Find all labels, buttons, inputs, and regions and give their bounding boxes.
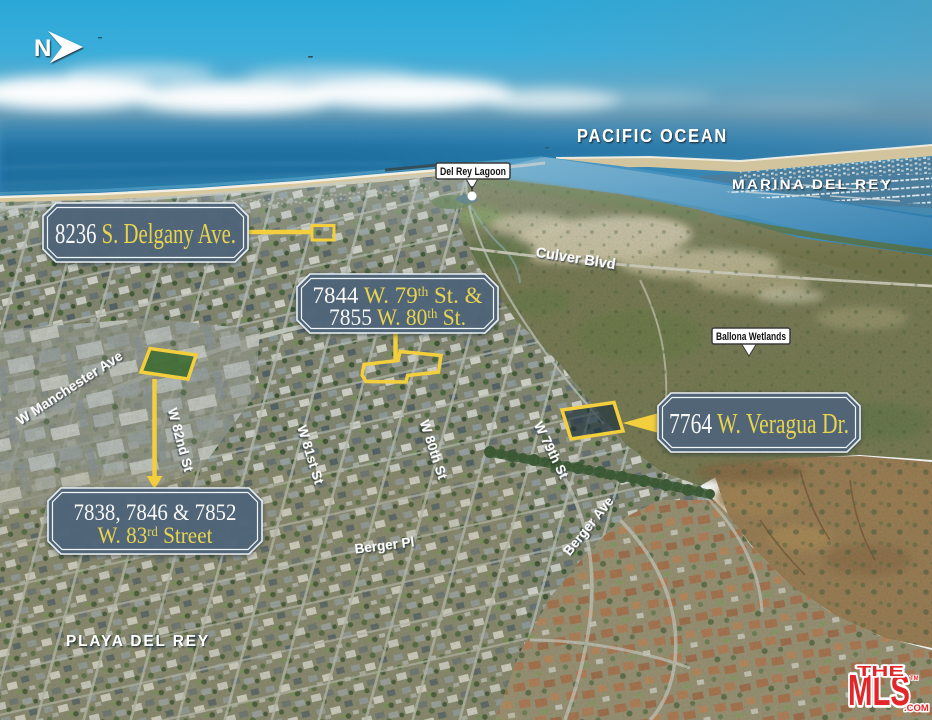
svg-text:Ballona Wetlands: Ballona Wetlands (716, 331, 786, 343)
svg-text:.COM: .COM (904, 703, 929, 714)
svg-text:N: N (34, 35, 51, 62)
svg-text:PACIFIC OCEAN: PACIFIC OCEAN (577, 126, 728, 146)
svg-text:8236 S. Delgany Ave.: 8236 S. Delgany Ave. (55, 219, 236, 250)
svg-text:7764 W. Veragua Dr.: 7764 W. Veragua Dr. (669, 409, 849, 440)
svg-text:MARINA DEL REY: MARINA DEL REY (732, 177, 893, 192)
svg-text:THE: THE (857, 663, 904, 680)
svg-text:TM: TM (910, 676, 919, 682)
svg-text:7855 W. 80th St.: 7855 W. 80th St. (329, 305, 466, 331)
svg-text:PLAYA DEL REY: PLAYA DEL REY (66, 633, 210, 650)
svg-text:Del Rey Lagoon: Del Rey Lagoon (440, 166, 506, 178)
